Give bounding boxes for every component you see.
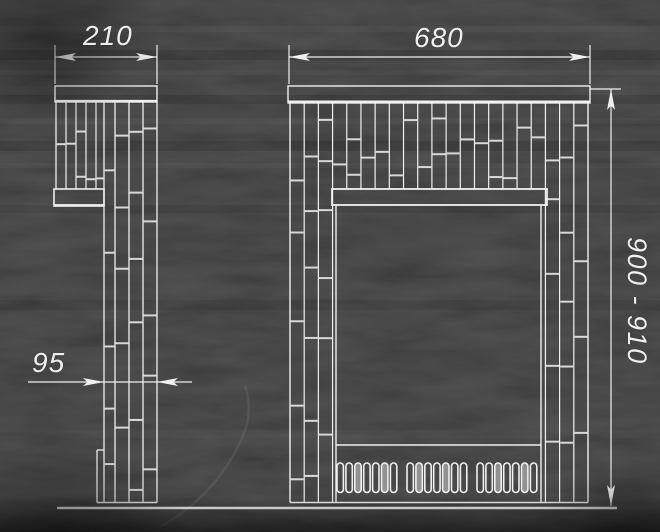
grain-streak	[0, 141, 660, 151]
vent-slot	[355, 463, 361, 493]
dim-label-height: 900 - 910	[623, 237, 650, 365]
corner-shadow	[0, 440, 190, 532]
dim-label-column-depth: 95	[32, 349, 65, 377]
corner-shadow	[0, 0, 160, 130]
vent-slot	[443, 463, 449, 493]
vent-slot	[416, 463, 422, 493]
dim-label-front-width: 680	[414, 24, 464, 52]
vent-slot	[382, 463, 388, 493]
corner-shadow	[530, 455, 660, 532]
vent-slot	[495, 463, 501, 493]
vent-slot	[522, 463, 528, 493]
technical-drawing-canvas: 210 680 95 900 - 910	[0, 0, 660, 532]
dim-label-side-width: 210	[83, 22, 133, 50]
grain-streak	[0, 163, 660, 168]
fireplace-portal-drawing	[0, 0, 660, 532]
